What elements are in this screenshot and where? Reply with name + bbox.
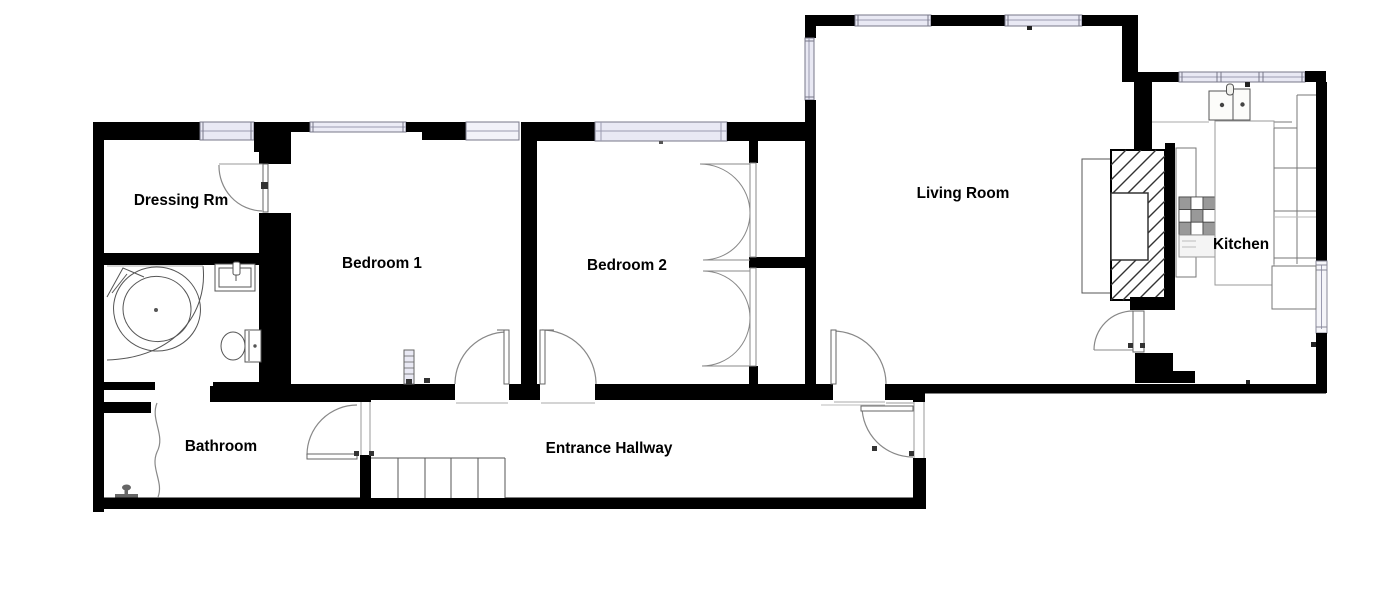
svg-text:Kitchen: Kitchen <box>1213 236 1269 253</box>
svg-text:Bedroom 2: Bedroom 2 <box>587 257 667 274</box>
svg-text:Bathroom: Bathroom <box>185 438 257 455</box>
svg-text:Entrance Hallway: Entrance Hallway <box>546 440 673 457</box>
svg-text:Living Room: Living Room <box>917 185 1010 202</box>
svg-text:Bedroom 1: Bedroom 1 <box>342 255 422 272</box>
svg-text:Dressing Rm: Dressing Rm <box>134 192 228 209</box>
